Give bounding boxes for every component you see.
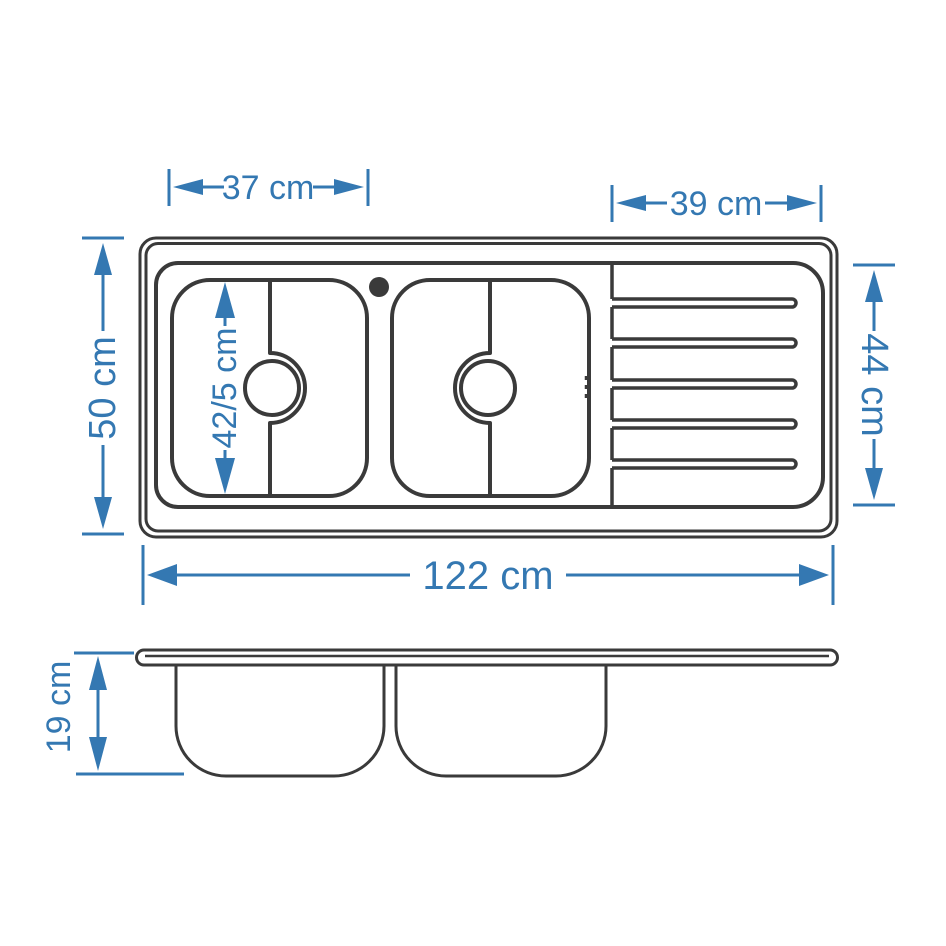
dim-total-depth: 50 cm: [82, 238, 124, 534]
dim-arrow-down: [215, 458, 235, 494]
dim-arrow-up: [865, 270, 883, 302]
dim-arrow-down: [89, 737, 107, 771]
drawing-linework: [137, 238, 838, 776]
dim-drainboard-width: 39 cm: [612, 185, 821, 223]
drainboard-groove: [612, 380, 796, 388]
dim-left-bowl-width: 37 cm: [169, 169, 368, 207]
dim-arrow-up: [89, 656, 107, 690]
top-view: [140, 238, 837, 537]
right-drain: [461, 361, 515, 415]
left-bowl-profile: [176, 666, 384, 776]
sink-technical-drawing: 37 cm 39 cm 50 cm 42/5 cm: [0, 0, 946, 946]
dim-arrow-right: [799, 564, 829, 586]
dimension-annotations: 37 cm 39 cm 50 cm 42/5 cm: [40, 169, 895, 774]
dim-arrow-right: [787, 195, 817, 211]
dim-arrow-up: [94, 243, 112, 275]
dim-profile-height: 19 cm: [40, 653, 184, 774]
rim-profile: [137, 650, 838, 665]
dim-ticks: [74, 653, 184, 774]
dim-arrow-right: [334, 179, 364, 195]
dim-label-42-5cm: 42/5 cm: [206, 328, 244, 449]
dim-label-122cm: 122 cm: [422, 554, 553, 598]
dim-label-19cm: 19 cm: [40, 661, 78, 754]
dim-arrow-left: [147, 564, 177, 586]
drainboard-groove: [612, 299, 796, 307]
dim-label-44cm: 44 cm: [853, 333, 895, 436]
dim-label-39cm: 39 cm: [670, 185, 763, 223]
drainboard-groove: [612, 339, 796, 347]
dim-label-37cm: 37 cm: [222, 169, 315, 207]
drainboard-groove: [612, 420, 796, 428]
drawing-canvas: 37 cm 39 cm 50 cm 42/5 cm: [0, 0, 946, 946]
left-drain: [245, 361, 299, 415]
drainboard-groove: [612, 460, 796, 468]
dim-arrow-up: [215, 282, 235, 318]
dim-arrow-down: [94, 497, 112, 529]
faucet-hole: [369, 277, 389, 297]
dim-arrow-down: [865, 468, 883, 500]
dim-bowl-inner-depth: 42/5 cm: [206, 282, 244, 494]
dim-arrow-left: [616, 195, 646, 211]
dim-total-length: 122 cm: [143, 545, 833, 605]
dim-label-50cm: 50 cm: [82, 336, 124, 439]
dim-arrow-left: [173, 179, 203, 195]
right-bowl-profile: [396, 666, 606, 776]
side-view: [137, 650, 838, 776]
dim-drainboard-depth: 44 cm: [853, 265, 895, 505]
